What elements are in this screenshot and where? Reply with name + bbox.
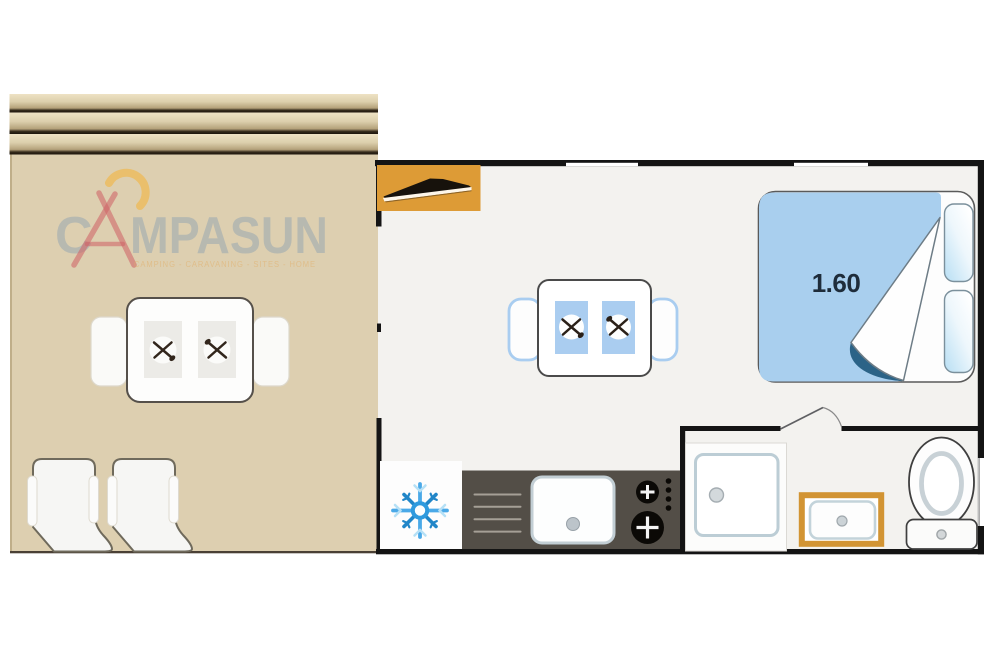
svg-text:1.60: 1.60 bbox=[812, 268, 861, 298]
svg-text:C: C bbox=[55, 207, 93, 265]
svg-text:MPASUN: MPASUN bbox=[130, 207, 328, 265]
svg-text:CAMPING - CARAVANING - SITES -: CAMPING - CARAVANING - SITES - HOME bbox=[134, 260, 316, 269]
